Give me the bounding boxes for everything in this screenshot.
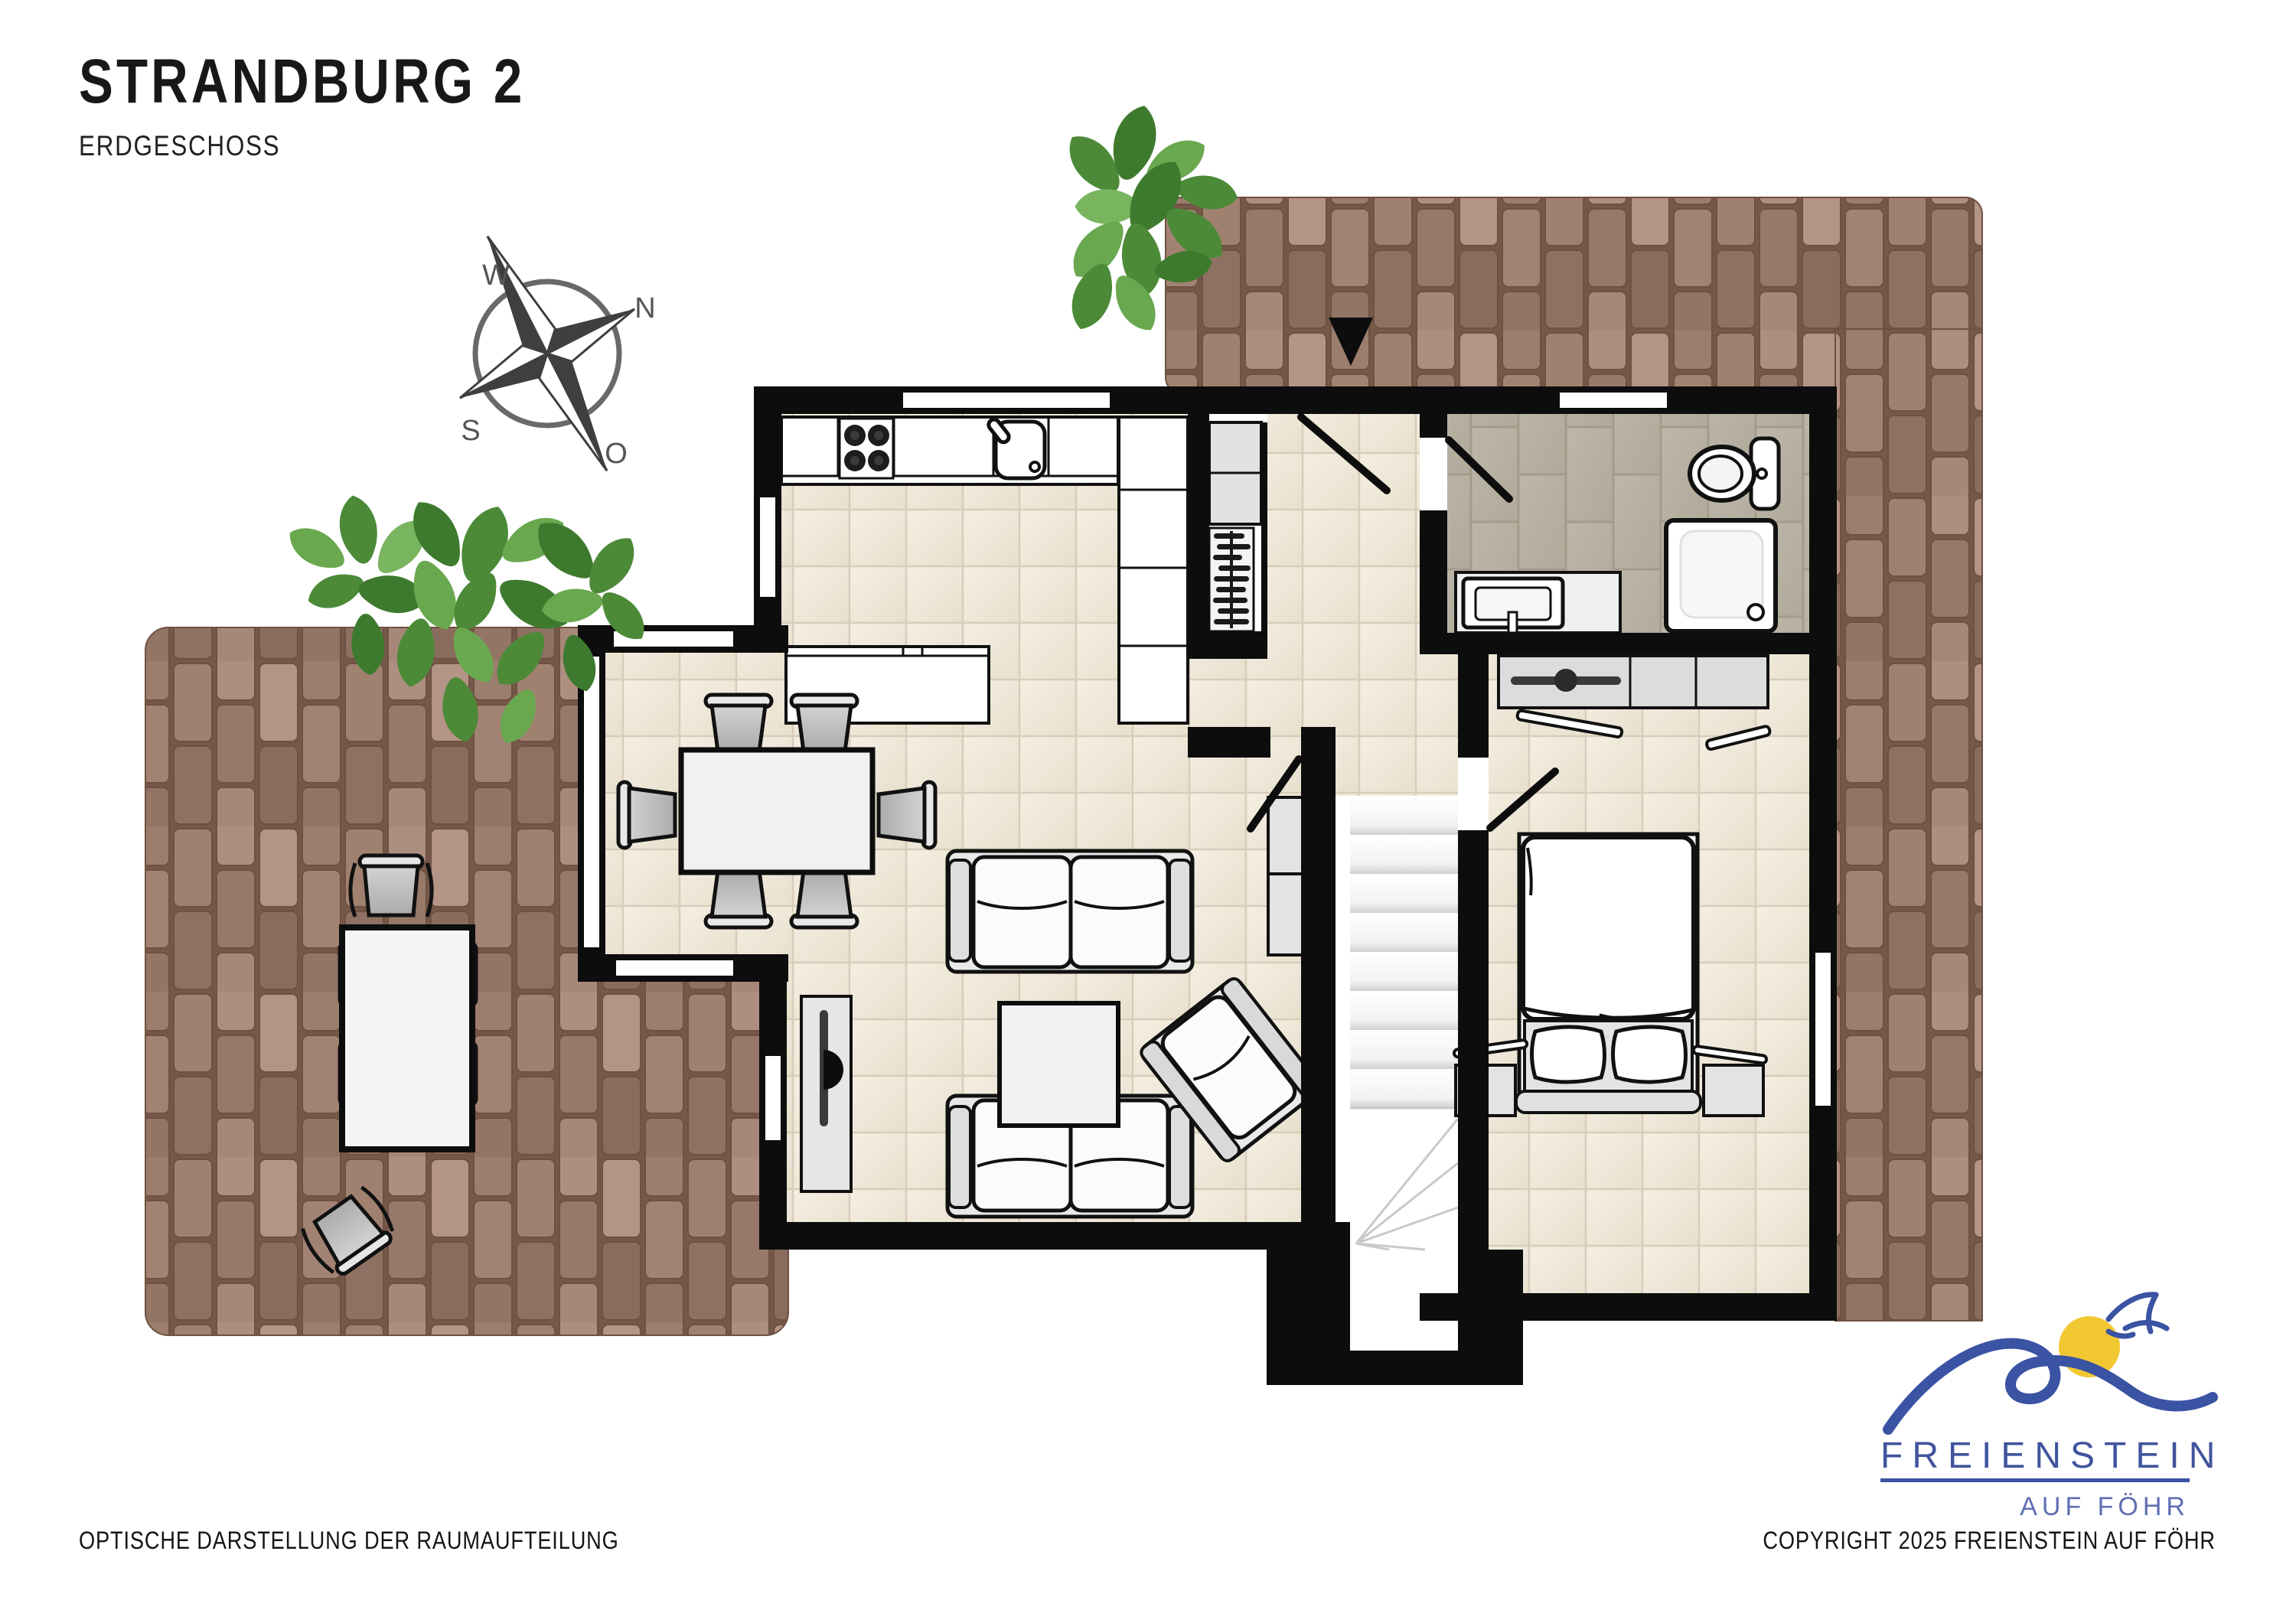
bathroom-sink <box>1456 572 1620 633</box>
compass-north-label: N <box>634 292 655 324</box>
coffee-table <box>1000 1003 1118 1126</box>
window <box>584 657 599 947</box>
stove-icon <box>840 419 893 478</box>
window <box>1815 953 1831 1106</box>
nightstand <box>1693 1046 1766 1116</box>
window <box>765 1056 781 1140</box>
radiator-icon <box>1209 528 1254 631</box>
staircase <box>1350 796 1458 1250</box>
outdoor-table <box>342 927 472 1149</box>
compass-east-label: O <box>605 438 628 470</box>
double-bed <box>1516 834 1701 1113</box>
hall-closet <box>1209 422 1261 524</box>
window <box>616 960 733 976</box>
logo-tagline: AUF FÖHR <box>2020 1492 2190 1521</box>
logo: FREIENSTEIN AUF FÖHR <box>1880 1295 2224 1521</box>
floor-plan-page: STRANDBURG 2 ERDGESCHOSS OPTISCHE DARSTE… <box>0 0 2296 1623</box>
window <box>1560 393 1667 408</box>
logo-brand: FREIENSTEIN <box>1880 1436 2224 1476</box>
window <box>903 393 1110 408</box>
window <box>760 497 775 597</box>
compass-west-label: W <box>482 259 510 292</box>
kitchen-tall-cabinets <box>1119 417 1188 723</box>
dining-table <box>681 750 872 872</box>
sofa-top <box>947 851 1192 972</box>
compass-icon: W N S O <box>400 192 694 516</box>
kitchen-sink-icon <box>987 417 1045 478</box>
tv-sideboard <box>801 996 851 1191</box>
shower-icon <box>1666 520 1776 631</box>
compass-south-label: S <box>461 415 480 447</box>
logo-seagull-icon <box>2108 1295 2167 1336</box>
logo-wave-icon <box>1888 1344 2213 1429</box>
floor-plan: W N S O FREIENSTEIN AUF FÖHR <box>0 0 2296 1623</box>
kitchen-counter <box>781 417 1118 484</box>
